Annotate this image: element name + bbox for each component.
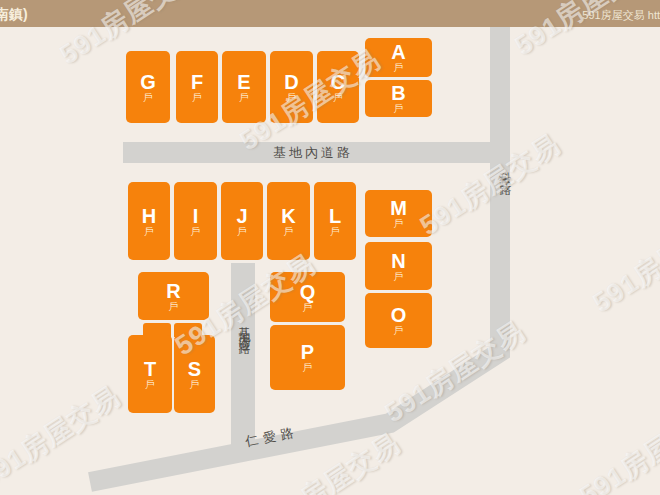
block-letter: O [391, 305, 407, 325]
block-letter: P [301, 342, 314, 362]
block-letter: F [191, 72, 203, 92]
block-c[interactable]: C 戶 [317, 51, 359, 123]
block-letter: G [140, 72, 156, 92]
block-letter: A [391, 42, 405, 62]
block-unit-label: 戶 [237, 227, 247, 237]
block-k[interactable]: K 戶 [267, 182, 310, 260]
block-n[interactable]: N 戶 [365, 242, 432, 290]
block-letter: T [144, 359, 156, 379]
block-letter: L [329, 206, 341, 226]
block-unit-label: 戶 [333, 93, 343, 103]
block-unit-label: 戶 [191, 227, 201, 237]
block-b[interactable]: B 戶 [365, 80, 432, 117]
block-h[interactable]: H 戶 [128, 182, 170, 260]
top-bar: 南鎮) 591房屋交易 htt [0, 0, 660, 27]
block-g[interactable]: G 戶 [126, 51, 170, 123]
block-letter: J [236, 206, 247, 226]
site-plan-map: 南鎮) 591房屋交易 htt 基地內道路 科專二路 基地內道路 仁愛路 G 戶… [0, 0, 660, 495]
block-unit-label: 戶 [190, 380, 200, 390]
block-letter: Q [300, 282, 316, 302]
page-title: 南鎮) [0, 6, 28, 24]
block-letter: M [390, 198, 407, 218]
block-q[interactable]: Q 戶 [270, 272, 345, 322]
block-unit-label: 戶 [330, 227, 340, 237]
road-label-kezhuan: 科專二路 [497, 162, 514, 178]
block-p[interactable]: P 戶 [270, 325, 345, 390]
block-unit-label: 戶 [303, 303, 313, 313]
block-unit-label: 戶 [394, 63, 404, 73]
block-unit-label: 戶 [394, 326, 404, 336]
road-label-internal-horizontal: 基地內道路 [273, 144, 353, 162]
block-e[interactable]: E 戶 [222, 51, 266, 123]
block-unit-label: 戶 [169, 302, 179, 312]
block-unit-label: 戶 [394, 272, 404, 282]
block-j[interactable]: J 戶 [221, 182, 263, 260]
block-unit-label: 戶 [394, 104, 404, 114]
block-d[interactable]: D 戶 [270, 51, 313, 123]
block-unit-label: 戶 [287, 93, 297, 103]
block-letter: E [237, 72, 250, 92]
block-r[interactable]: R 戶 [138, 272, 209, 320]
block-unit-label: 戶 [284, 227, 294, 237]
block-letter: D [284, 72, 298, 92]
block-letter: B [391, 83, 405, 103]
block-f[interactable]: F 戶 [176, 51, 218, 123]
block-unit-label: 戶 [144, 227, 154, 237]
block-unit-label: 戶 [239, 93, 249, 103]
block-letter: K [281, 206, 295, 226]
block-o[interactable]: O 戶 [365, 293, 432, 348]
block-unit-label: 戶 [303, 363, 313, 373]
block-unit-label: 戶 [394, 219, 404, 229]
block-letter: C [331, 72, 345, 92]
block-unit-label: 戶 [145, 380, 155, 390]
block-letter: I [193, 206, 199, 226]
block-letter: R [166, 281, 180, 301]
block-letter: N [391, 251, 405, 271]
block-letter: S [188, 359, 201, 379]
block-s[interactable]: S 戶 [174, 335, 215, 413]
site-watermark-label: 591房屋交易 htt [582, 8, 660, 23]
block-unit-label: 戶 [143, 93, 153, 103]
block-i[interactable]: I 戶 [174, 182, 217, 260]
block-a[interactable]: A 戶 [365, 38, 432, 77]
block-l[interactable]: L 戶 [314, 182, 356, 260]
block-unit-label: 戶 [192, 93, 202, 103]
block-t[interactable]: T 戶 [128, 335, 172, 413]
block-letter: H [142, 206, 156, 226]
block-m[interactable]: M 戶 [365, 190, 432, 237]
road-label-internal-vertical: 基地內道路 [236, 317, 253, 337]
